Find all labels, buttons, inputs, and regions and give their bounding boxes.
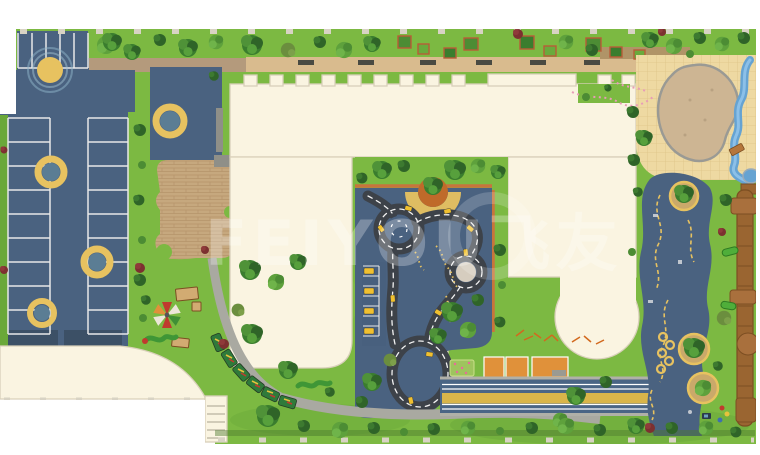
platform xyxy=(730,290,756,304)
platform xyxy=(731,198,757,214)
site-plan-drawing xyxy=(0,0,760,455)
site-plan-canvas: FEIYOU飞友 xyxy=(0,0,760,455)
walkway-deck xyxy=(737,190,753,426)
mini-parking xyxy=(362,262,386,346)
fitness-equipment xyxy=(552,370,566,376)
running-track xyxy=(440,377,652,417)
caterpillar-toy xyxy=(298,383,330,386)
parking-lot xyxy=(0,30,152,346)
sand-play-area xyxy=(636,55,756,181)
adventure-trail xyxy=(639,173,718,436)
green-strip xyxy=(128,112,152,346)
parking-canopy xyxy=(64,330,122,346)
wall xyxy=(216,108,223,152)
round-platform xyxy=(737,333,759,355)
paved-plaza xyxy=(155,155,237,260)
caterpillar-toy xyxy=(146,337,176,340)
platform xyxy=(736,398,756,422)
building-top-bar xyxy=(230,84,636,157)
entry-plaza xyxy=(150,67,223,160)
roundabout-island xyxy=(386,216,412,242)
track-center-lane xyxy=(442,393,650,404)
parking-surface xyxy=(0,70,135,346)
wall xyxy=(214,155,230,167)
